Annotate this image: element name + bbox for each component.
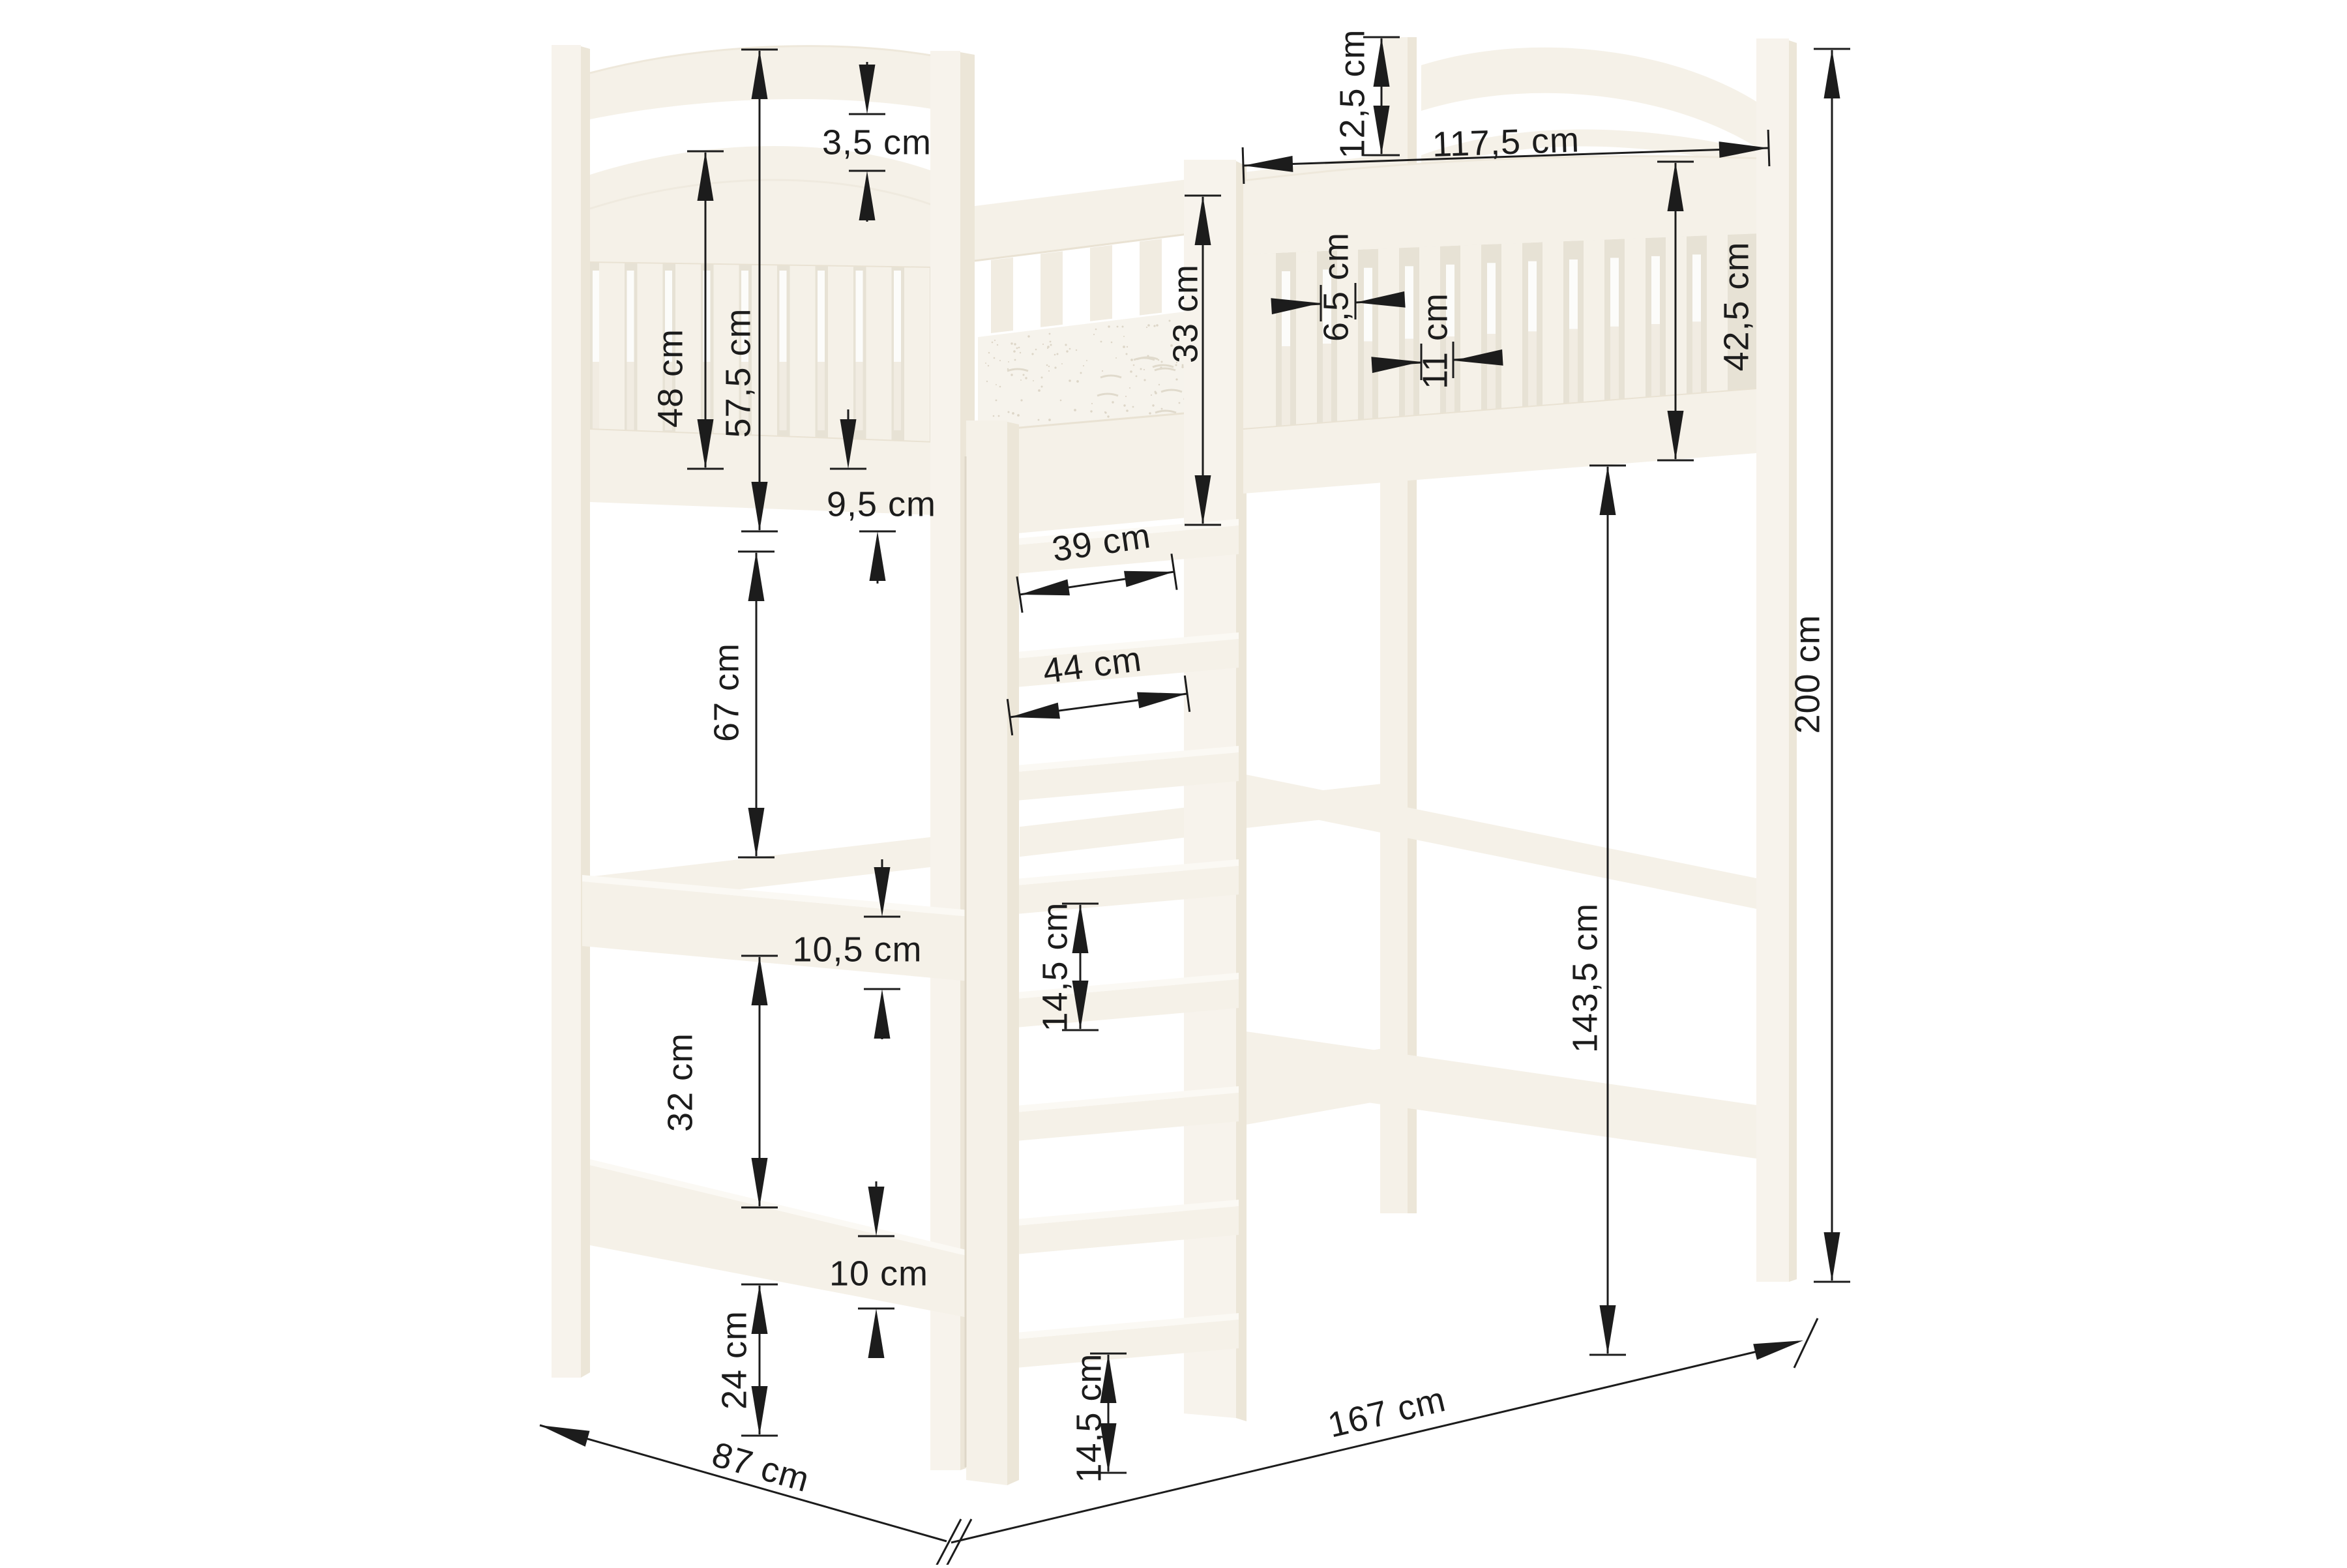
- svg-text:14,5 cm: 14,5 cm: [1035, 902, 1074, 1031]
- svg-text:11 cm: 11 cm: [1415, 293, 1454, 389]
- svg-text:6,5 cm: 6,5 cm: [1316, 232, 1355, 342]
- svg-text:200 cm: 200 cm: [1788, 614, 1827, 733]
- svg-text:24 cm: 24 cm: [715, 1310, 754, 1410]
- svg-text:57,5 cm: 57,5 cm: [718, 308, 758, 437]
- svg-text:10,5 cm: 10,5 cm: [792, 930, 922, 969]
- svg-text:10 cm: 10 cm: [829, 1254, 928, 1293]
- svg-text:33 cm: 33 cm: [1166, 264, 1205, 363]
- svg-text:9,5 cm: 9,5 cm: [827, 484, 936, 524]
- svg-text:67 cm: 67 cm: [707, 643, 746, 742]
- svg-text:117,5 cm: 117,5 cm: [1432, 120, 1580, 164]
- svg-text:12,5 cm: 12,5 cm: [1333, 29, 1372, 158]
- svg-text:42,5 cm: 42,5 cm: [1717, 241, 1756, 371]
- svg-text:3,5 cm: 3,5 cm: [822, 123, 932, 162]
- svg-text:48 cm: 48 cm: [651, 329, 690, 428]
- svg-text:143,5 cm: 143,5 cm: [1565, 903, 1604, 1053]
- svg-text:14,5 cm: 14,5 cm: [1069, 1353, 1108, 1483]
- svg-text:32 cm: 32 cm: [660, 1033, 700, 1132]
